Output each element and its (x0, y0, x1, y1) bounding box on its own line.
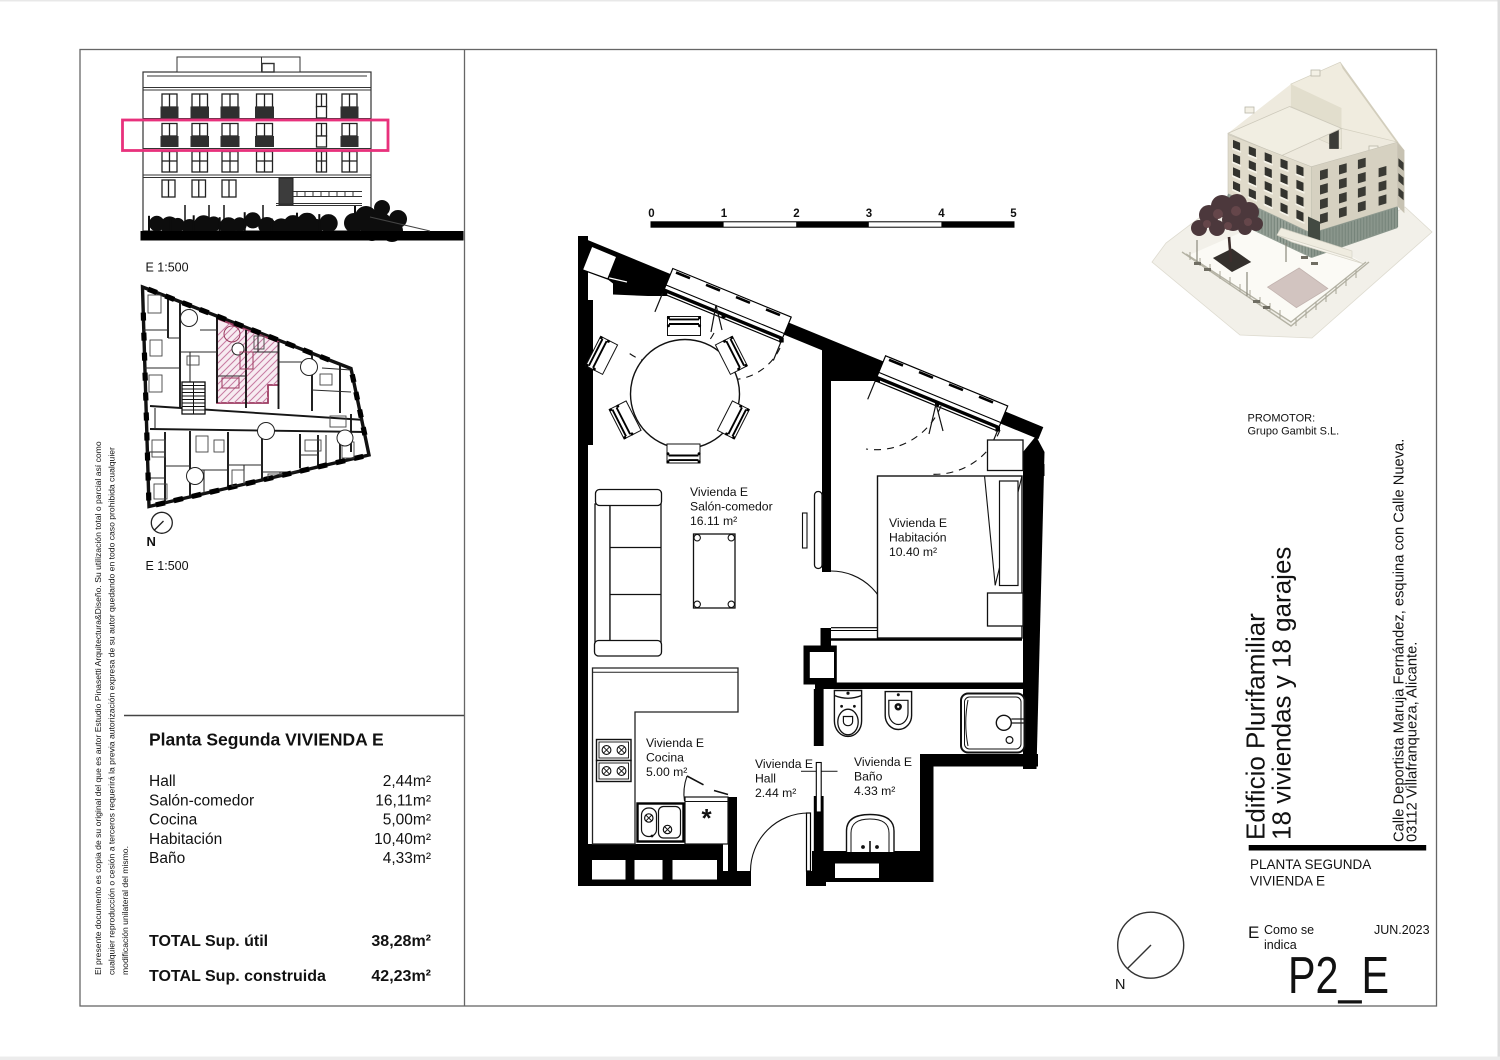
svg-text:Salón-comedor: Salón-comedor (149, 792, 254, 809)
svg-text:4.33 m²: 4.33 m² (854, 784, 895, 798)
svg-text:Vivienda E: Vivienda E (646, 736, 704, 750)
svg-text:16,11m²: 16,11m² (375, 792, 431, 809)
svg-text:Vivienda E: Vivienda E (755, 757, 813, 771)
svg-text:10,40m²: 10,40m² (374, 831, 431, 848)
svg-text:5: 5 (1010, 208, 1017, 220)
svg-text:0: 0 (648, 208, 654, 220)
svg-text:PROMOTOR:: PROMOTOR: (1248, 413, 1316, 425)
svg-text:42,23m²: 42,23m² (371, 968, 431, 985)
svg-text:1: 1 (721, 208, 728, 220)
svg-text:5,00m²: 5,00m² (383, 812, 431, 829)
svg-text:N: N (147, 534, 156, 549)
svg-text:Baño: Baño (149, 850, 185, 867)
svg-text:PLANTA SEGUNDA: PLANTA SEGUNDA (1250, 857, 1371, 872)
svg-text:JUN.2023: JUN.2023 (1374, 923, 1430, 937)
svg-text:VIVIENDA E: VIVIENDA E (1250, 874, 1325, 889)
svg-text:Hall: Hall (755, 772, 776, 786)
svg-text:Salón-comedor: Salón-comedor (690, 500, 773, 514)
svg-text:10.40 m²: 10.40 m² (889, 545, 937, 559)
svg-text:Vivienda E: Vivienda E (889, 516, 947, 530)
svg-text:2.44 m²: 2.44 m² (755, 786, 796, 800)
svg-text:*: * (701, 803, 712, 833)
svg-text:Habitación: Habitación (149, 831, 222, 848)
svg-text:P2_E: P2_E (1288, 947, 1389, 1005)
svg-text:Habitación: Habitación (889, 531, 947, 545)
svg-text:03112 Villafranqueza, Alicante: 03112 Villafranqueza, Alicante. (1405, 642, 1421, 842)
svg-text:Grupo Gambit S.L.: Grupo Gambit S.L. (1248, 426, 1340, 438)
svg-text:4: 4 (938, 208, 945, 220)
svg-text:Cocina: Cocina (149, 812, 198, 829)
svg-text:Planta Segunda VIVIENDA E: Planta Segunda VIVIENDA E (149, 730, 384, 750)
svg-text:Vivienda E: Vivienda E (690, 485, 748, 499)
svg-text:5.00 m²: 5.00 m² (646, 765, 687, 779)
svg-text:16.11 m²: 16.11 m² (690, 514, 737, 528)
svg-text:Como se: Como se (1264, 923, 1314, 937)
svg-text:4,33m²: 4,33m² (383, 850, 431, 867)
svg-text:Baño: Baño (854, 770, 883, 784)
svg-text:Cocina: Cocina (646, 751, 684, 765)
svg-text:modificación unilateral del mi: modificación unilateral del mismo. (120, 846, 130, 975)
svg-text:E 1:500: E 1:500 (146, 261, 189, 275)
svg-text:N: N (1115, 977, 1125, 993)
svg-text:TOTAL Sup. construida: TOTAL Sup. construida (149, 968, 326, 985)
svg-text:3: 3 (866, 208, 872, 220)
svg-text:2: 2 (793, 208, 799, 220)
svg-text:El presente documento es copia: El presente documento es copia de su ori… (93, 441, 103, 975)
svg-text:18 viviendas y 18 garajes: 18 viviendas y 18 garajes (1267, 547, 1297, 840)
svg-text:Hall: Hall (149, 773, 176, 790)
svg-text:E: E (1248, 923, 1259, 942)
svg-text:38,28m²: 38,28m² (371, 933, 431, 950)
svg-text:2,44m²: 2,44m² (383, 773, 431, 790)
svg-text:cualquier reproducción o cesió: cualquier reproducción o cesión a tercer… (107, 447, 117, 975)
svg-text:Vivienda E: Vivienda E (854, 755, 912, 769)
svg-text:E 1:500: E 1:500 (146, 559, 189, 573)
svg-text:TOTAL Sup. útil: TOTAL Sup. útil (149, 933, 268, 950)
